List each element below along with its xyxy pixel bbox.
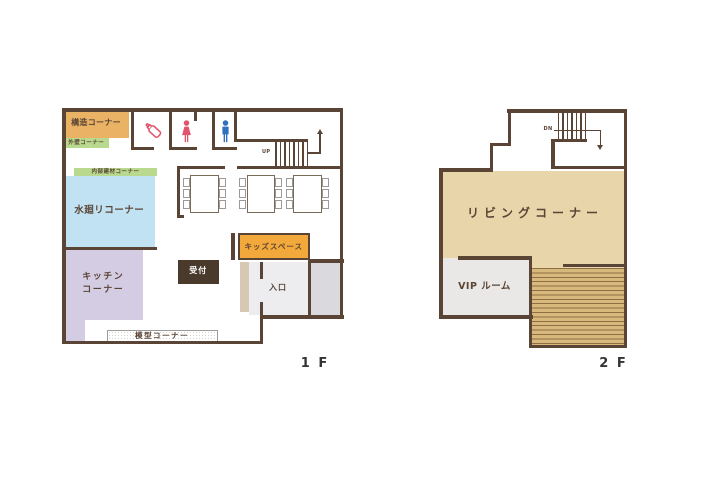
chair: [239, 200, 246, 210]
table: [293, 175, 322, 213]
stair-tread: [298, 142, 300, 166]
wall-segment: [212, 108, 215, 147]
wall-segment: [177, 166, 225, 169]
stairs-down-arrow-line: [554, 130, 601, 132]
stairs-up-arrowhead: [317, 129, 323, 134]
exterior-wall-corner-label: 外壁コーナー: [64, 140, 110, 146]
living-corner-label: リビングコーナー: [455, 207, 615, 220]
chair: [322, 189, 329, 199]
chair: [275, 178, 282, 188]
stairs-down-arrowhead: [597, 145, 603, 150]
chair: [322, 200, 329, 210]
wall-segment: [458, 256, 532, 260]
wall-segment: [439, 315, 533, 319]
wall-segment: [531, 345, 627, 349]
stairs-up-arrow-line: [319, 134, 321, 153]
step-seating-area: [531, 268, 624, 345]
wall-segment: [169, 147, 197, 151]
chair: [183, 178, 190, 188]
floor2-label: 2 F: [595, 356, 632, 371]
wall-segment: [234, 108, 237, 139]
chair: [183, 189, 190, 199]
wall-segment: [308, 259, 344, 263]
chair: [219, 200, 226, 210]
chair: [286, 200, 293, 210]
kids-space-label: キッズスペース: [238, 243, 310, 251]
chair: [239, 178, 246, 188]
male-restroom-icon: [219, 120, 232, 147]
chair: [322, 178, 329, 188]
wall-segment: [340, 108, 344, 319]
stair-tread: [558, 113, 560, 140]
water-area-label: 水廻リコーナー: [64, 206, 156, 216]
chair: [275, 189, 282, 199]
model-corner-label: 模型コーナー: [107, 332, 218, 340]
wall-segment: [508, 109, 512, 146]
chair: [219, 178, 226, 188]
wall-segment: [507, 109, 627, 113]
structure-corner-label: 構造コーナー: [64, 113, 129, 128]
wall-segment: [131, 108, 134, 150]
stair-tread: [567, 113, 569, 140]
chair: [219, 189, 226, 199]
reception-label: 受付: [178, 267, 219, 276]
vip-room-label: VIP ルーム: [447, 282, 522, 292]
floor-plan-1f: 構造コーナー 外壁コーナー 内部建材コーナー 水廻リコーナー キッチン コーナー…: [0, 0, 400, 500]
stair-tread: [571, 113, 573, 140]
stairs-down-label: DN: [544, 126, 553, 132]
chair: [239, 189, 246, 199]
stairs-down-arrow-line: [600, 130, 602, 145]
wall-segment: [439, 168, 443, 319]
wall-segment: [169, 108, 172, 150]
table: [247, 175, 276, 213]
stair-tread: [280, 142, 282, 166]
wall-segment: [624, 109, 628, 348]
wall-segment: [62, 108, 343, 112]
wall-segment: [551, 139, 587, 142]
stair-tread: [562, 113, 564, 140]
entrance-porch: [311, 263, 340, 316]
chair: [286, 189, 293, 199]
wall-segment: [490, 143, 494, 172]
kitchen-corner-area-foot: [64, 320, 86, 341]
female-restroom-icon: [180, 120, 193, 147]
wall-segment: [62, 108, 66, 344]
stair-tread: [580, 113, 582, 140]
stair-tread: [275, 142, 277, 166]
stair-tread: [302, 142, 304, 166]
wall-segment: [177, 166, 180, 219]
wall-segment: [260, 302, 263, 344]
floor-plan-canvas: 構造コーナー 外壁コーナー 内部建材コーナー 水廻リコーナー キッチン コーナー…: [0, 0, 707, 500]
wall-segment: [212, 147, 237, 151]
chair: [286, 178, 293, 188]
wall-segment: [551, 139, 555, 169]
nursing-bottle-icon: [142, 119, 164, 145]
wall-segment: [64, 247, 158, 251]
kitchen-corner-label: キッチン コーナー: [64, 271, 144, 297]
wall-segment: [62, 341, 263, 345]
wall-segment: [194, 108, 197, 121]
kitchen-line2: コーナー: [82, 285, 124, 295]
wall-segment: [308, 259, 311, 315]
wall-segment: [563, 264, 624, 267]
wall-segment: [263, 315, 344, 319]
stair-tread: [289, 142, 291, 166]
stairs-up-label: UP: [262, 149, 270, 155]
wall-segment: [237, 166, 343, 169]
chair: [183, 200, 190, 210]
stair-tread: [585, 113, 587, 140]
chair: [275, 200, 282, 210]
wall-segment: [551, 166, 627, 169]
entrance-mat: [240, 262, 249, 312]
wall-segment: [529, 256, 533, 348]
wall-segment: [439, 168, 493, 172]
wall-segment: [234, 139, 308, 142]
table: [190, 175, 219, 213]
floor1-label: 1 F: [297, 356, 333, 371]
stair-tread: [284, 142, 286, 166]
wall-segment: [134, 147, 154, 151]
wall-segment: [231, 233, 235, 260]
stair-tread: [293, 142, 295, 166]
stair-tread: [576, 113, 578, 140]
entrance-label: 入口: [263, 284, 293, 293]
wall-segment: [177, 215, 184, 218]
kitchen-line1: キッチン: [82, 272, 124, 282]
interior-materials-corner-label: 内部建材コーナー: [74, 169, 157, 175]
wall-segment: [260, 262, 263, 279]
